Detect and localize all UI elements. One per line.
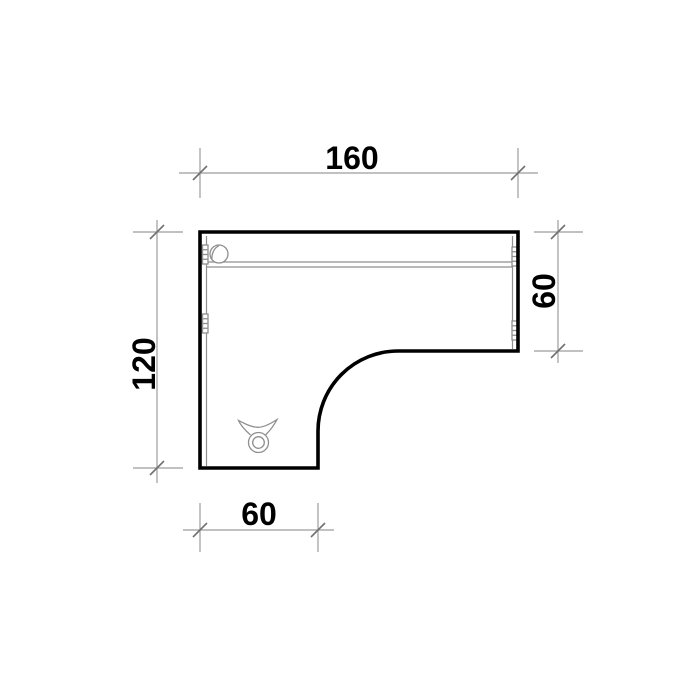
cable-clip-icon [239,420,278,453]
hinge-icon [203,245,209,264]
desk [200,232,518,468]
dim-label-right: 60 [526,273,562,309]
dimension-left: 120 [126,220,183,483]
grommet-icon [210,245,228,263]
dim-label-left: 120 [126,337,162,390]
desk-plan-drawing: 160 120 60 60 [0,0,700,700]
hinge-icon [203,314,209,333]
dimension-right: 60 [526,220,583,363]
dim-label-top: 160 [325,140,378,176]
dimension-top: 160 [179,140,538,198]
dim-label-bottom: 60 [241,496,277,532]
dimension-bottom: 60 [183,496,334,552]
